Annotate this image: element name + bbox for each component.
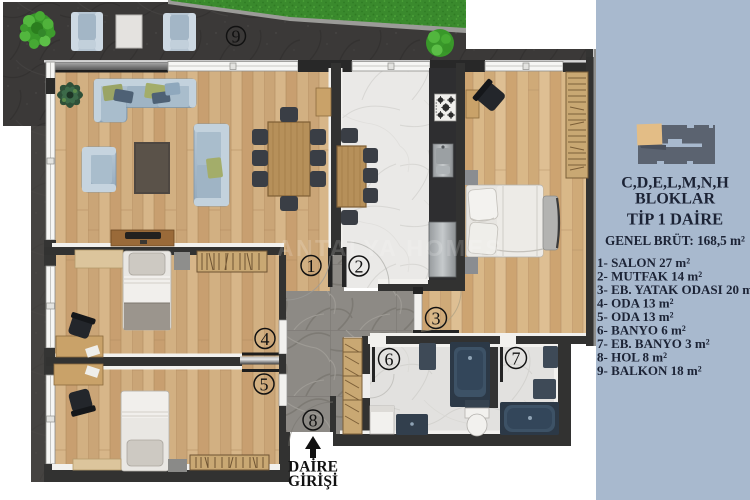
svg-text:8: 8 bbox=[309, 411, 318, 431]
svg-text:6: 6 bbox=[385, 350, 394, 370]
svg-text:3: 3 bbox=[432, 309, 441, 329]
svg-text:GENEL BRÜT: 168,5 m²: GENEL BRÜT: 168,5 m² bbox=[605, 233, 745, 248]
svg-text:C,D,E,L,M,N,H: C,D,E,L,M,N,H bbox=[621, 175, 729, 192]
svg-text:9- BALKON 18 m²: 9- BALKON 18 m² bbox=[597, 363, 702, 378]
svg-text:5: 5 bbox=[260, 375, 269, 395]
svg-text:BLOKLAR: BLOKLAR bbox=[635, 191, 715, 208]
svg-text:TİP 1 DAİRE: TİP 1 DAİRE bbox=[627, 210, 723, 229]
svg-text:GİRİŞİ: GİRİŞİ bbox=[288, 473, 338, 490]
svg-text:1: 1 bbox=[307, 256, 316, 276]
svg-text:4: 4 bbox=[261, 329, 270, 349]
svg-text:9: 9 bbox=[232, 27, 241, 47]
svg-text:2: 2 bbox=[355, 257, 364, 277]
svg-text:7: 7 bbox=[512, 349, 521, 369]
